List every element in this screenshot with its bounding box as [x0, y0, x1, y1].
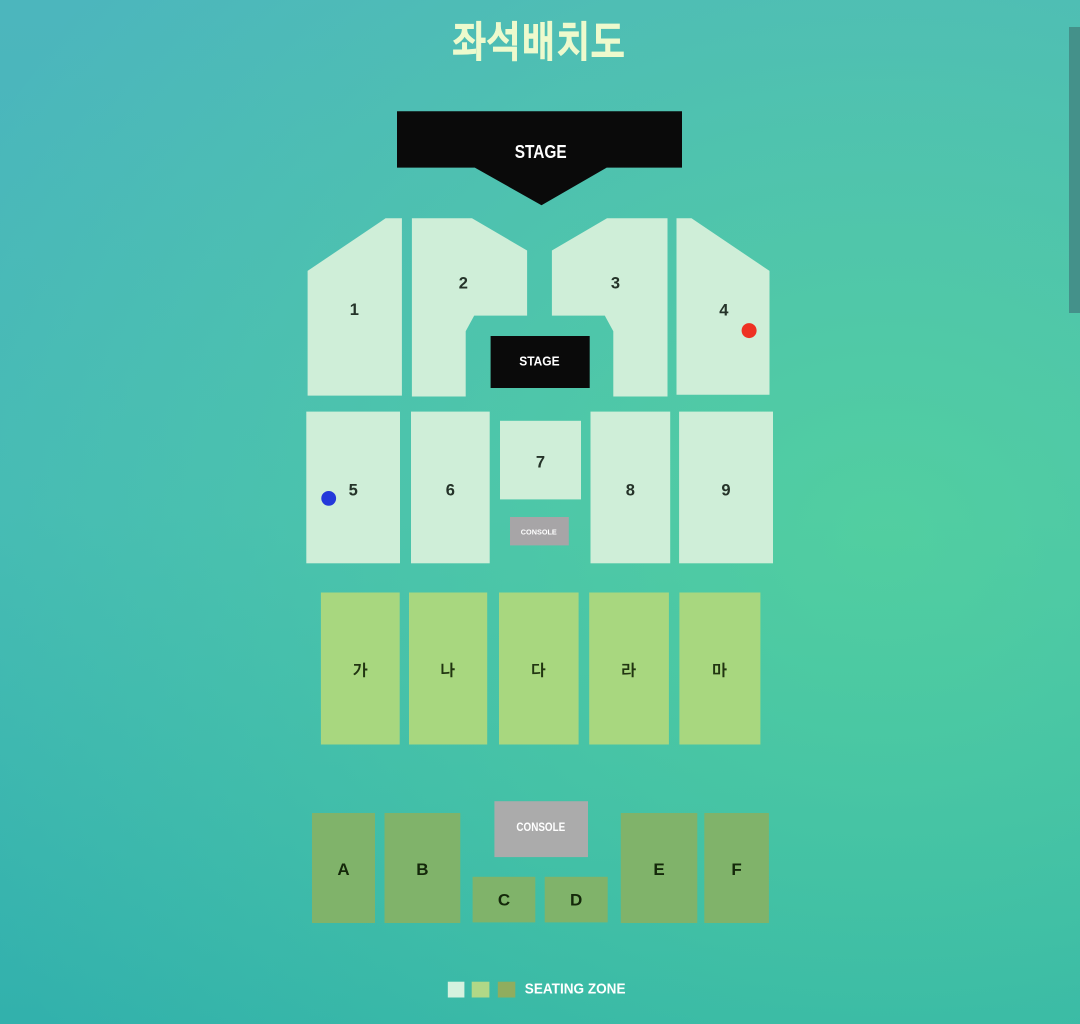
svg-text:2: 2 [459, 275, 468, 293]
svg-text:3: 3 [611, 275, 620, 293]
svg-text:A: A [337, 860, 349, 879]
svg-text:6: 6 [446, 481, 455, 499]
svg-text:E: E [653, 860, 664, 879]
svg-text:SEATING ZONE: SEATING ZONE [525, 981, 626, 998]
svg-text:CONSOLE: CONSOLE [521, 530, 557, 537]
svg-text:CONSOLE: CONSOLE [516, 820, 565, 834]
svg-text:D: D [570, 891, 582, 910]
svg-text:9: 9 [721, 481, 730, 499]
svg-text:4: 4 [719, 302, 729, 320]
svg-text:7: 7 [536, 453, 545, 471]
svg-text:1: 1 [350, 301, 359, 319]
svg-text:STAGE: STAGE [515, 142, 567, 162]
svg-text:STAGE: STAGE [519, 354, 559, 369]
svg-text:5: 5 [349, 481, 358, 499]
svg-text:F: F [731, 860, 741, 879]
svg-text:C: C [498, 891, 510, 910]
svg-text:8: 8 [626, 481, 635, 499]
svg-text:B: B [416, 860, 428, 879]
